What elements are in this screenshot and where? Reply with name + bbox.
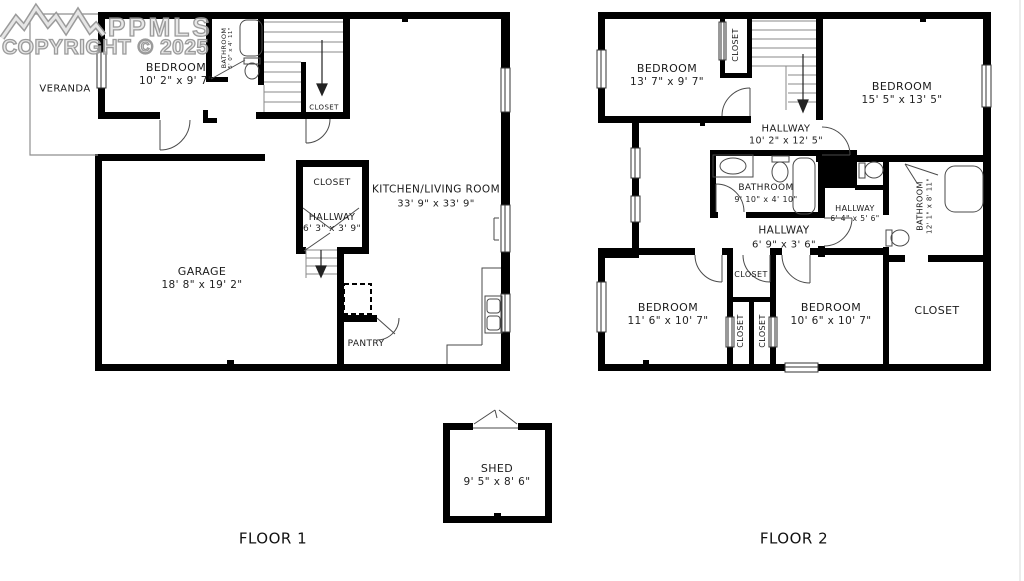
room-label-shed: SHED 9' 5" x 8' 6"	[464, 462, 531, 490]
room-label-closet-v2-f2: CLOSET	[758, 314, 768, 347]
room-label-hallway-small-f2: HALLWAY 6' 4" x 5' 6"	[830, 204, 879, 224]
room-label-hallway-lower-f2: HALLWAY 6' 9" x 3' 6"	[752, 225, 816, 252]
toilet-icon	[772, 156, 789, 162]
floor2-caption: FLOOR 2	[760, 529, 828, 549]
room-label-closet-small-f2: CLOSET	[734, 270, 767, 280]
room-label-bathroom-mid-f2: BATHROOM 9' 10" x 4' 10"	[734, 183, 797, 205]
floor2-stair-arrow	[798, 54, 808, 112]
room-label-closet-top-f2: CLOSET	[731, 28, 741, 61]
room-label-bathroom-right-f2: BATHROOM 12' 1" x 8' 11"	[915, 178, 934, 234]
furnace-dashed-box	[344, 284, 371, 314]
floor2-stairs	[752, 21, 816, 110]
room-label-hall-closet-f1: CLOSET	[313, 178, 350, 190]
toilet-icon	[859, 163, 865, 178]
shed-doors	[473, 410, 518, 428]
room-label-bedroom-f2-br: BEDROOM 10' 6" x 10' 7"	[790, 301, 871, 329]
room-label-stair-closet-f1: CLOSET	[309, 103, 339, 112]
room-label-hallway-main-f2: HALLWAY 10' 2" x 12' 5"	[749, 122, 823, 147]
floor1-caption: FLOOR 1	[239, 529, 307, 549]
room-label-bedroom-f2-tl: BEDROOM 13' 7" x 9' 7"	[630, 62, 704, 90]
room-label-pantry: PANTRY	[348, 339, 385, 351]
floor-plan-page: VERANDA BEDROOM 10' 2" x 9' 7" BATHROOM …	[0, 0, 1024, 581]
watermark-copyright: COPYRIGHT © 2025	[2, 36, 209, 60]
watermark: PPMLS COPYRIGHT © 2025	[0, 0, 290, 118]
room-label-closet-walkin-f2: CLOSET	[914, 304, 959, 318]
room-label-closet-v1-f2: CLOSET	[736, 314, 746, 347]
kitchen-sink-icon	[485, 296, 502, 333]
room-label-kitchen-living: KITCHEN/LIVING ROOM 33' 9" x 33' 9"	[372, 184, 500, 211]
room-label-bedroom-f2-tr: BEDROOM 15' 5" x 13' 5"	[861, 80, 942, 108]
room-label-garage: GARAGE 18' 8" x 19' 2"	[161, 265, 242, 293]
room-label-bedroom-f2-bl: BEDROOM 11' 6" x 10' 7"	[627, 301, 708, 329]
bathtub-icon	[945, 166, 983, 212]
room-label-hallway-f1: HALLWAY 6' 3" x 3' 9"	[303, 212, 361, 236]
